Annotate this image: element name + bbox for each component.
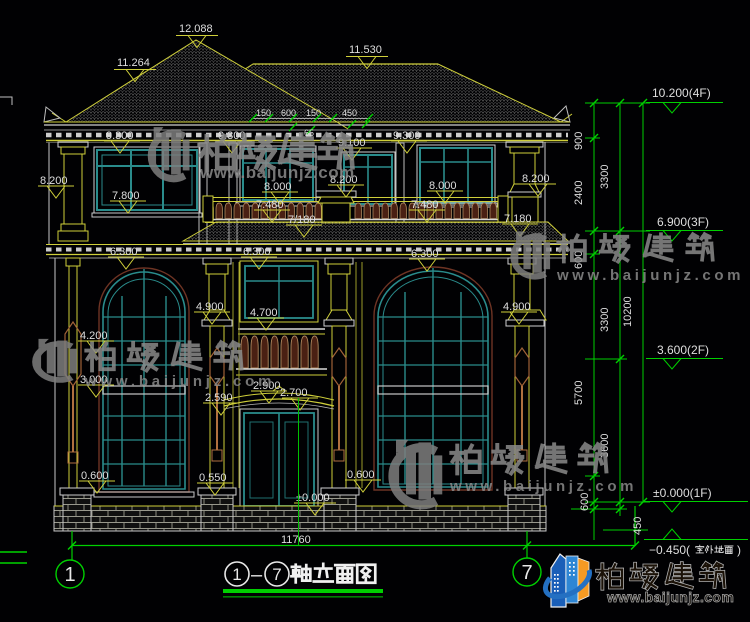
svg-text:www.baijunjz.com: www.baijunjz.com (606, 589, 734, 605)
svg-text:3300: 3300 (599, 165, 611, 189)
svg-text:11.530: 11.530 (349, 44, 382, 56)
svg-text:4.700: 4.700 (250, 307, 278, 319)
svg-text:6.300: 6.300 (110, 246, 138, 258)
svg-text:2.700: 2.700 (280, 387, 308, 399)
svg-text:8.200: 8.200 (40, 175, 68, 187)
svg-text:5700: 5700 (573, 381, 585, 405)
svg-text:12.088: 12.088 (179, 23, 213, 35)
svg-text:): ) (737, 543, 741, 557)
svg-text:3300: 3300 (599, 308, 611, 332)
svg-text:6.300: 6.300 (411, 248, 439, 260)
svg-text:–: – (251, 564, 263, 586)
svg-text:7.180: 7.180 (504, 213, 532, 225)
svg-text:9.300: 9.300 (106, 130, 134, 142)
svg-text:600: 600 (579, 493, 591, 511)
svg-text:450: 450 (342, 108, 357, 118)
svg-text:3.600(2F): 3.600(2F) (657, 343, 709, 357)
svg-text:8.000: 8.000 (264, 181, 292, 193)
svg-text:11.264: 11.264 (117, 57, 150, 69)
svg-text:450: 450 (632, 517, 644, 535)
svg-text:1: 1 (64, 564, 75, 586)
svg-text:2400: 2400 (573, 181, 585, 205)
svg-text:±0.000: ±0.000 (296, 492, 330, 504)
svg-text:0.600: 0.600 (347, 469, 375, 481)
svg-text:7.480: 7.480 (256, 199, 284, 211)
svg-text:6.300: 6.300 (243, 246, 271, 258)
svg-text:150: 150 (256, 108, 271, 118)
svg-text:7: 7 (272, 565, 281, 584)
svg-text:7/180: 7/180 (288, 214, 316, 226)
svg-text:www.baijunjz.com: www.baijunjz.com (449, 478, 637, 495)
svg-text:900: 900 (573, 132, 585, 150)
svg-text:±0.000(1F): ±0.000(1F) (653, 486, 712, 500)
svg-text:7: 7 (521, 562, 532, 584)
svg-text:7.800: 7.800 (112, 190, 140, 202)
svg-text:www.baijunjz.com: www.baijunjz.com (556, 267, 744, 284)
svg-text:8.000: 8.000 (429, 180, 457, 192)
svg-text:6.900(3F): 6.900(3F) (657, 215, 709, 229)
svg-text:8.200: 8.200 (522, 173, 550, 185)
svg-text:1: 1 (232, 565, 241, 584)
svg-text:4.200: 4.200 (80, 330, 108, 342)
svg-text:www.baijunjz.com: www.baijunjz.com (84, 373, 275, 390)
svg-text:0.550: 0.550 (199, 472, 227, 484)
svg-text:4.900: 4.900 (503, 301, 531, 313)
svg-text:4.900: 4.900 (196, 301, 224, 313)
svg-text:7.480: 7.480 (411, 199, 439, 211)
svg-text:10.200(4F): 10.200(4F) (652, 86, 711, 100)
svg-text:10200: 10200 (622, 296, 634, 327)
svg-text:−0.450(: −0.450( (649, 543, 690, 557)
svg-text:www.baijunjz.com: www.baijunjz.com (199, 163, 355, 182)
svg-text:2.590: 2.590 (205, 392, 233, 404)
svg-text:0.600: 0.600 (81, 470, 109, 482)
svg-text:9.300: 9.300 (393, 130, 421, 142)
svg-text:11760: 11760 (281, 534, 311, 546)
